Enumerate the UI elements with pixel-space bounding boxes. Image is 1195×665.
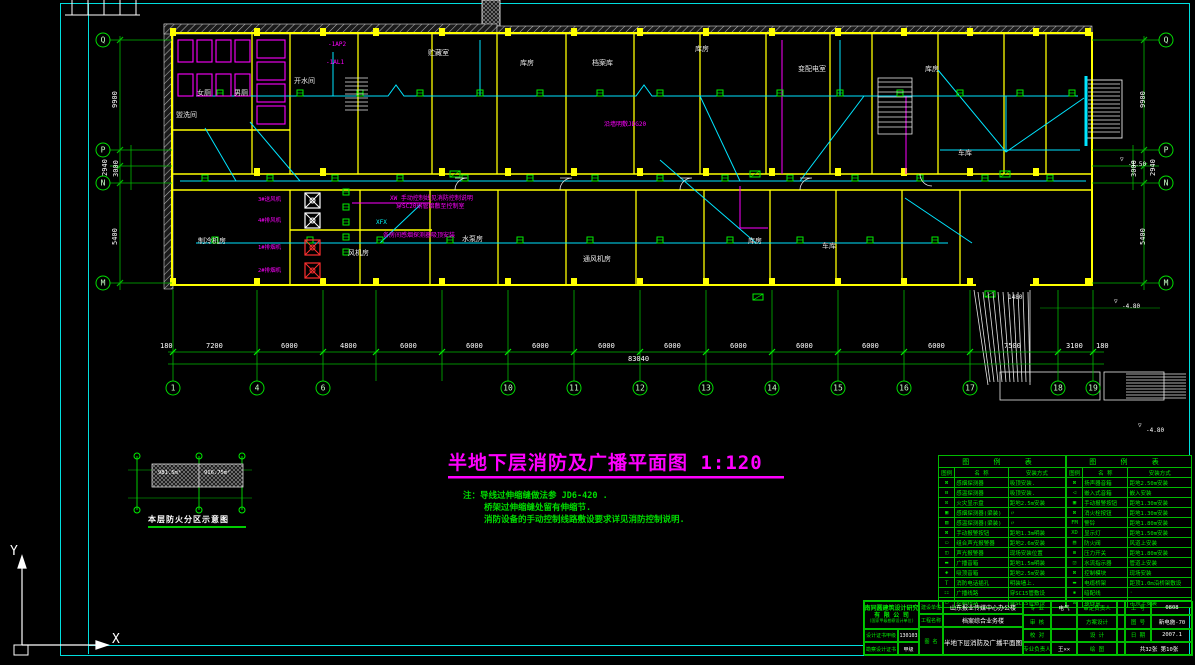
- notes-line-2: 桥架过伸缩缝处留有伸缩节.: [484, 501, 591, 513]
- grid-bubble-P: P: [1159, 143, 1174, 158]
- legend-table-right: 图 例 表图例名 称安装方式⊠扬声器音箱距地2.50m安装◁嵌入式音箱嵌入安装▣…: [1066, 455, 1192, 608]
- room-label: 库房: [748, 238, 762, 245]
- dimension-text: 6000: [862, 343, 879, 350]
- legend-row: ▤防火阀风道上安装: [1067, 538, 1192, 548]
- dimension-text: 6000: [928, 343, 945, 350]
- elevation-marker: ▽: [1120, 157, 1124, 163]
- dimension-text-vertical: 2940: [102, 159, 109, 176]
- annotation-label: XW 手动控制线见消防控制说明: [390, 196, 473, 202]
- compartment-area-right: 916.75m²: [204, 471, 231, 477]
- legend-row: ▬电缆桥架距顶1.0m沿桥架敷设: [1067, 578, 1192, 588]
- ucs-x-label: X: [112, 633, 120, 646]
- dimension-text-vertical: 3000: [1131, 160, 1138, 177]
- legend-row: ⊠控制模块现场安装: [1067, 568, 1192, 578]
- label-owner: 建设单位: [919, 601, 943, 614]
- room-label: 水泵房: [462, 236, 483, 243]
- fan-label: 2#排烟机: [258, 269, 281, 275]
- annotation-label: 穿SC20钢管暗敷至控制室: [396, 204, 464, 210]
- subproject-name: 档案综合业务楼: [943, 614, 1023, 627]
- compartment-area-left: 981.5m²: [158, 471, 181, 477]
- titleblock-cell: 审定负责人: [1077, 601, 1117, 615]
- dimension-total: 83040: [628, 356, 649, 363]
- room-label: 库房: [520, 60, 534, 67]
- titleblock-cell: [1117, 601, 1125, 615]
- elevation-marker: -4.80: [1146, 428, 1164, 434]
- label-drawing-name: 图 名: [919, 627, 943, 656]
- grid-bubble-1: 1: [166, 381, 181, 396]
- notes-line-3: 消防设备的手动控制线路敷设要求详见消防控制说明.: [484, 513, 685, 525]
- elevation-marker: -4.80: [1122, 304, 1140, 310]
- dimension-text-vertical: 9900: [112, 91, 119, 108]
- grid-bubble-M: M: [96, 276, 111, 291]
- titleblock-cell: 校 对: [1023, 629, 1051, 643]
- grid-bubble-6: 6: [316, 381, 331, 396]
- room-label: 开水间: [294, 78, 315, 85]
- legend-row: ▥感温探测器(梁装)〃: [939, 518, 1066, 528]
- room-label: 贮藏室: [428, 50, 449, 57]
- dimension-text: 6000: [598, 343, 615, 350]
- elevation-marker: ▽: [1138, 423, 1142, 429]
- legend-row: ⊡火灾显示盘距地2.5m安装: [939, 498, 1066, 508]
- caption-underline: [148, 526, 246, 528]
- project-name: 山东报业传媒中心办公楼: [943, 601, 1023, 614]
- legend-row: XD显示灯距地1.50m安装: [1067, 528, 1192, 538]
- dimension-text: 6000: [400, 343, 417, 350]
- ucs-axis-icon: [14, 556, 108, 655]
- notes-prefix: 注：: [463, 491, 480, 501]
- legend-row: ⊠消火栓按钮距地1.30m安装: [1067, 508, 1192, 518]
- annotation-label: 各房间感烟探测器吸顶安装: [383, 233, 455, 239]
- titleblock-cell: 图 号: [1125, 615, 1151, 629]
- titleblock-cell: [1051, 629, 1077, 643]
- titleblock-cell: 方案设计: [1077, 615, 1117, 629]
- legend-row: Ｔ消防电话插孔明装墙上.: [939, 578, 1066, 588]
- fan-label: 4#排风机: [258, 219, 281, 225]
- room-label: 车库: [822, 243, 836, 250]
- grid-bubble-4: 4: [250, 381, 265, 396]
- label-project: 工程名称: [919, 614, 943, 627]
- dimension-text: 6000: [730, 343, 747, 350]
- titleblock-cell: 专 业: [1023, 601, 1051, 615]
- grid-bubble-Q: Q: [1159, 33, 1174, 48]
- room-label: 变配电室: [798, 66, 826, 73]
- dimension-text-vertical: 2940: [1150, 159, 1157, 176]
- room-label: 通风机房: [583, 256, 611, 263]
- titleblock-cell: [1117, 615, 1125, 629]
- dimension-text: 6000: [796, 343, 813, 350]
- cert-value-1: 130103: [898, 629, 919, 642]
- dimension-text-vertical: 5400: [1140, 228, 1147, 245]
- legend-row: ◈吸顶音箱距地2.5m安装: [939, 568, 1066, 578]
- room-label: 女厕: [197, 90, 211, 97]
- titleblock-cell: 审 核: [1023, 615, 1051, 629]
- grid-bubble-11: 11: [567, 381, 582, 396]
- grid-bubble-13: 13: [699, 381, 714, 396]
- titleblock-cell: 新电施-70: [1151, 615, 1193, 629]
- drawing-title: 半地下层消防及广播平面图 1:120: [448, 448, 763, 475]
- titleblock-cell: 0808: [1151, 601, 1193, 615]
- fan-label: 3#送风机: [258, 198, 281, 204]
- grid-bubble-16: 16: [897, 381, 912, 396]
- legend-row: ▪暗配线·: [1067, 588, 1192, 598]
- cad-canvas[interactable]: 半地下层消防及广播平面图 1:120 注：导线过伸缩缝做法参 JD6-420 .…: [0, 0, 1195, 665]
- room-label: 盥洗间: [176, 112, 197, 119]
- grid-bubble-17: 17: [963, 381, 978, 396]
- cert-label-2: 勘察设计证书: [864, 642, 898, 656]
- elevation-marker: ▽: [1114, 299, 1118, 305]
- drawing-name: 半地下层消防及广播平面图: [943, 627, 1023, 656]
- legend-row: ⊞压力开关距地1.80m安装: [1067, 548, 1192, 558]
- legend-row: FM警铃距地1.80m安装: [1067, 518, 1192, 528]
- grid-bubble-19: 19: [1086, 381, 1101, 396]
- grid-bubble-P: P: [96, 143, 111, 158]
- room-label: 库房: [695, 46, 709, 53]
- dimension-text: 6000: [664, 343, 681, 350]
- cert-label-1: 设计证书甲级: [864, 629, 898, 642]
- room-label: 档案库: [592, 60, 613, 67]
- legend-row: ▭组合声光报警器距地2.6m安装: [939, 538, 1066, 548]
- room-label: 库房: [925, 66, 939, 73]
- titleblock-cell: [1117, 629, 1125, 643]
- grid-bubble-18: 18: [1051, 381, 1066, 396]
- dimension-text: 180: [160, 343, 173, 350]
- titleblock-cell: 王××: [1051, 642, 1077, 656]
- grid-bubble-N: N: [96, 176, 111, 191]
- legend-row: ⊟感温探测器吸顶安装.: [939, 488, 1066, 498]
- legend-table-left: 图 例 表图例名 称安装方式⊠感烟探测器吸顶安装.⊟感温探测器吸顶安装.⊡火灾显…: [938, 455, 1066, 608]
- titleblock-cell: 工 号: [1125, 601, 1151, 615]
- legend-row: ◫声光报警器现场安装位置: [939, 548, 1066, 558]
- grid-bubble-M: M: [1159, 276, 1174, 291]
- fan-label: 1#排烟机: [258, 246, 281, 252]
- titleblock-cell: 设 计: [1077, 629, 1117, 643]
- legend-row: ▬广播音箱距地1.5m明装: [939, 558, 1066, 568]
- ucs-y-label: Y: [10, 545, 18, 558]
- title-block: 济南同圆建筑设计研究院 有 限 公 司 (国家甲级勘察设计单位) 设计证书甲级 …: [863, 600, 1192, 655]
- fan-unit-symbols: [305, 193, 320, 278]
- grid-and-dimension-lines: [110, 36, 1160, 381]
- notes-line-1: 注：导线过伸缩缝做法参 JD6-420 .: [463, 489, 608, 501]
- titleblock-cell: 专业负责人: [1023, 642, 1051, 656]
- dimension-text-vertical: 3000: [113, 160, 120, 177]
- dimension-text: 6000: [532, 343, 549, 350]
- room-label: 制冷机房: [198, 238, 226, 245]
- legend-row: ◲水流指示器管道上安装: [1067, 558, 1192, 568]
- circuit-label: XFX: [376, 220, 387, 226]
- grid-bubble-N: N: [1159, 176, 1174, 191]
- dimension-text-vertical: 5400: [112, 228, 119, 245]
- dimension-text: 7200: [206, 343, 223, 350]
- company-name: 济南同圆建筑设计研究院 有 限 公 司 (国家甲级勘察设计单位): [864, 601, 919, 629]
- legend-row: ⚏广播线路穿SC15管敷设: [939, 588, 1066, 598]
- annotation-label: -1AP2: [328, 42, 346, 48]
- elevation-marker: 1480: [1008, 295, 1022, 301]
- legend-row: ⊠感烟探测器吸顶安装.: [939, 478, 1066, 488]
- legend-row: ▣手动报警按钮距地1.30m安装: [1067, 498, 1192, 508]
- ramp-opening: [976, 281, 1030, 288]
- dimension-text: 6000: [281, 343, 298, 350]
- structural-columns: [170, 28, 1091, 286]
- legend-row: ⊠扬声器音箱距地2.50m安装: [1067, 478, 1192, 488]
- grid-bubble-14: 14: [765, 381, 780, 396]
- room-label: 风机房: [348, 250, 369, 257]
- compartment-caption: 本层防火分区示意图: [148, 514, 229, 525]
- grid-bubble-12: 12: [633, 381, 648, 396]
- grid-bubble-15: 15: [831, 381, 846, 396]
- annotation-label: 沿墙明敷JDG20: [604, 122, 646, 128]
- dimension-text: 180: [1096, 343, 1109, 350]
- grid-bubble-10: 10: [501, 381, 516, 396]
- room-label: 车库: [958, 150, 972, 157]
- dimension-text: 4800: [340, 343, 357, 350]
- dimension-text: 3100: [1066, 343, 1083, 350]
- title-underline: [448, 476, 784, 479]
- dimension-text-vertical: 9900: [1140, 91, 1147, 108]
- titleblock-cell: [1051, 615, 1077, 629]
- cert-value-2: 甲级: [898, 642, 919, 656]
- dimension-text: 7500: [1004, 343, 1021, 350]
- titleblock-cell: 共32张 第10张: [1125, 642, 1193, 656]
- titleblock-cell: 绘 图: [1077, 642, 1117, 656]
- titleblock-cell: 2007.1: [1151, 629, 1193, 643]
- room-label: 男厕: [234, 90, 248, 97]
- titleblock-cell: 日 期: [1125, 629, 1151, 643]
- legend-row: ◁嵌入式音箱嵌入安装: [1067, 488, 1192, 498]
- legend-row: ▣感烟探测器(梁装)〃: [939, 508, 1066, 518]
- building-walls: [164, 24, 1092, 289]
- titleblock-cell: [1117, 642, 1125, 656]
- grid-bubble-Q: Q: [96, 33, 111, 48]
- titleblock-cell: 电气: [1051, 601, 1077, 615]
- annotation-label: -1AL1: [326, 60, 344, 66]
- dimension-text: 6000: [466, 343, 483, 350]
- legend-row: ⊠手动报警按钮距地1.3m明装: [939, 528, 1066, 538]
